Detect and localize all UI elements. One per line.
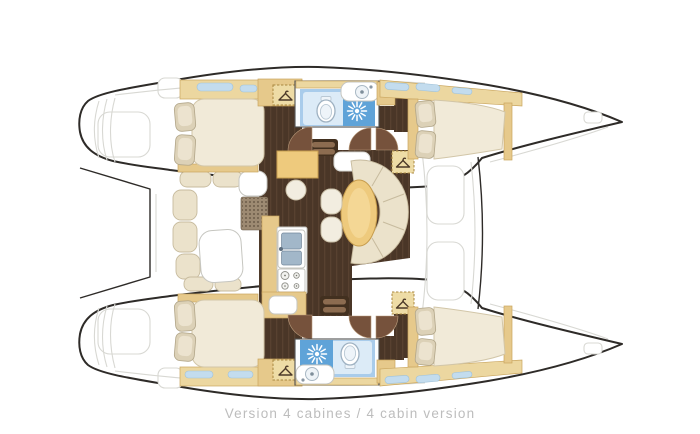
version-caption: Version 4 cabines / 4 cabin version xyxy=(0,406,700,421)
port-anchor-hatch xyxy=(584,112,602,123)
faucet xyxy=(369,85,372,88)
galley-cabinet xyxy=(262,216,279,294)
galley-worktop xyxy=(269,296,297,314)
faucet xyxy=(301,378,304,381)
nav-stool xyxy=(286,180,306,200)
pillow xyxy=(415,130,436,159)
forward-crossbeam-shadow xyxy=(471,162,475,304)
cockpit xyxy=(173,171,268,291)
trampoline-hatches xyxy=(427,166,464,300)
cockpit-table xyxy=(198,229,244,284)
pillow xyxy=(415,100,437,128)
dinette-table-top xyxy=(348,188,371,238)
port-hanging-locker xyxy=(273,85,298,105)
pillow xyxy=(174,102,196,132)
double-bed xyxy=(192,99,264,166)
double-bed xyxy=(192,300,264,367)
pillow xyxy=(415,338,437,366)
galley-sink xyxy=(278,230,305,268)
double-bed xyxy=(434,307,505,366)
dinette-stool xyxy=(321,217,342,242)
pillow xyxy=(174,300,196,331)
port-head xyxy=(295,81,379,127)
stove-burners-icon xyxy=(278,269,305,292)
dinette-stool xyxy=(321,189,342,214)
hull-window xyxy=(385,375,409,384)
sink-basin-icon xyxy=(356,86,369,99)
galley xyxy=(262,216,307,318)
pillow xyxy=(415,307,436,336)
boat-floor-plan xyxy=(0,0,700,434)
faucet xyxy=(279,247,283,251)
forward-crossbeam xyxy=(478,157,483,309)
pillow xyxy=(174,134,196,165)
nav-desk xyxy=(277,151,318,178)
catamaran-layout-page: Version 4 cabines / 4 cabin version xyxy=(0,0,700,434)
double-bed xyxy=(434,100,505,159)
starboard-anchor-hatch xyxy=(584,343,602,354)
hull-window xyxy=(240,85,257,92)
hull-window xyxy=(185,371,213,378)
hull-window xyxy=(228,371,253,378)
aft-crossbeam xyxy=(80,168,150,298)
helm-seat xyxy=(239,171,267,196)
hull-window xyxy=(197,83,233,91)
starboard-head xyxy=(295,339,379,385)
hull-window xyxy=(385,82,409,91)
sink-basin-icon xyxy=(306,368,319,381)
starboard-hanging-locker xyxy=(273,360,298,380)
pillow xyxy=(174,332,196,362)
starboard-companionway-steps xyxy=(320,296,349,315)
